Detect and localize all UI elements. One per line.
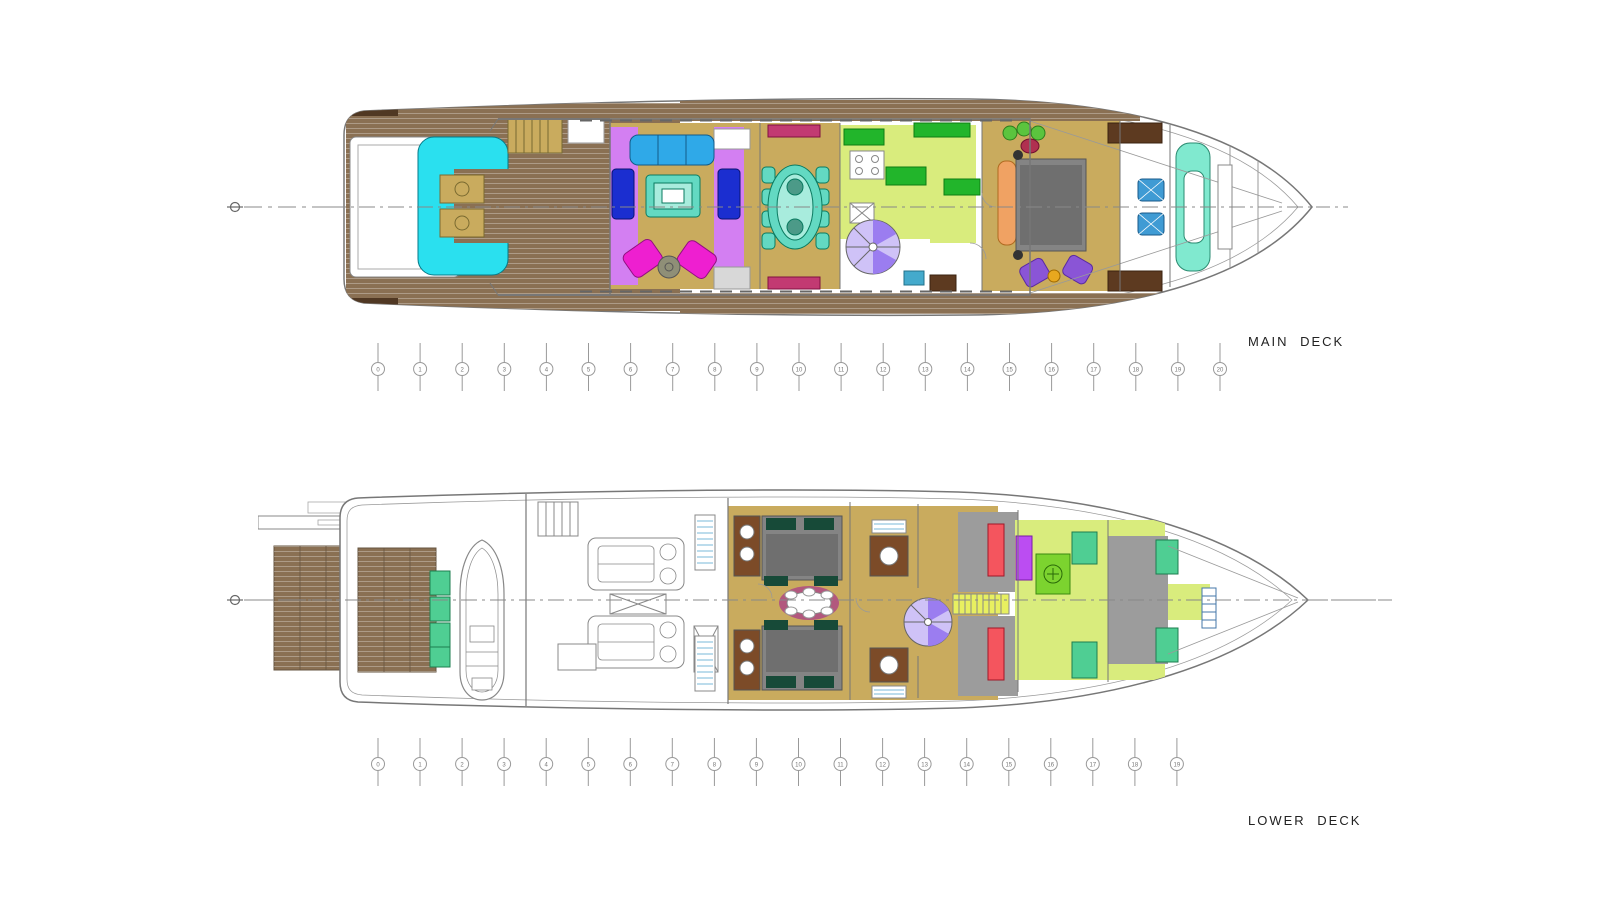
main-owner-cabin xyxy=(982,121,1120,291)
station-marker: 8 xyxy=(708,343,721,391)
svg-text:10: 10 xyxy=(795,762,802,768)
svg-text:11: 11 xyxy=(838,367,845,373)
svg-text:13: 13 xyxy=(922,367,929,373)
svg-text:14: 14 xyxy=(963,762,970,768)
lower-deck-label: LOWER DECK xyxy=(1248,813,1361,828)
station-marker: 17 xyxy=(1086,738,1099,786)
station-marker: 4 xyxy=(540,343,553,391)
station-marker: 18 xyxy=(1129,343,1142,391)
centerline-symbol-main xyxy=(227,203,243,212)
station-marker: 0 xyxy=(372,343,385,391)
main-deck-plan xyxy=(330,83,1320,333)
lower-tender xyxy=(460,540,504,700)
station-marker: 2 xyxy=(456,738,469,786)
svg-text:19: 19 xyxy=(1174,762,1181,768)
svg-text:10: 10 xyxy=(796,367,803,373)
svg-text:18: 18 xyxy=(1132,367,1139,373)
station-marker: 8 xyxy=(708,738,721,786)
station-marker: 5 xyxy=(582,343,595,391)
main-spiral-stair xyxy=(846,220,900,274)
lower-garage xyxy=(358,548,450,672)
station-marker: 7 xyxy=(666,738,679,786)
station-marker: 14 xyxy=(960,738,973,786)
centerline-symbol-lower xyxy=(227,596,243,605)
station-marker: 11 xyxy=(834,738,847,786)
station-marker: 5 xyxy=(582,738,595,786)
station-marker: 16 xyxy=(1045,343,1058,391)
main-deck-label: MAIN DECK xyxy=(1248,334,1344,349)
station-marker: 2 xyxy=(456,343,469,391)
station-marker: 12 xyxy=(876,738,889,786)
station-marker: 6 xyxy=(624,738,637,786)
station-marker: 3 xyxy=(498,343,511,391)
station-marker: 9 xyxy=(750,343,763,391)
station-marker: 15 xyxy=(1002,738,1015,786)
station-marker: 20 xyxy=(1214,343,1227,391)
station-marker: 12 xyxy=(877,343,890,391)
station-marker: 14 xyxy=(961,343,974,391)
station-marker: 13 xyxy=(918,738,931,786)
svg-text:13: 13 xyxy=(921,762,928,768)
svg-text:14: 14 xyxy=(964,367,971,373)
station-marker: 9 xyxy=(750,738,763,786)
station-marker: 19 xyxy=(1171,343,1184,391)
station-marker: 10 xyxy=(792,738,805,786)
station-marker: 7 xyxy=(666,343,679,391)
station-marker: 11 xyxy=(835,343,848,391)
station-marker: 6 xyxy=(624,343,637,391)
station-marker: 0 xyxy=(372,738,385,786)
lower-deck-plan xyxy=(258,476,1378,728)
svg-text:20: 20 xyxy=(1217,367,1224,373)
station-marker: 3 xyxy=(498,738,511,786)
station-marker: 13 xyxy=(919,343,932,391)
svg-text:17: 17 xyxy=(1089,762,1096,768)
station-marker: 17 xyxy=(1087,343,1100,391)
svg-text:18: 18 xyxy=(1132,762,1139,768)
svg-text:19: 19 xyxy=(1175,367,1182,373)
station-marker: 1 xyxy=(414,343,427,391)
main-deck-ruler: 01234567891011121314151617181920 xyxy=(330,339,1270,395)
drawing-canvas: 01234567891011121314151617181920 0123456… xyxy=(0,0,1600,900)
station-marker: 19 xyxy=(1170,738,1183,786)
station-marker: 16 xyxy=(1044,738,1057,786)
station-marker: 15 xyxy=(1003,343,1016,391)
svg-text:16: 16 xyxy=(1047,762,1054,768)
svg-text:11: 11 xyxy=(837,762,844,768)
lower-deck-ruler: 012345678910111213141516171819 xyxy=(330,734,1230,790)
station-marker: 18 xyxy=(1128,738,1141,786)
station-marker: 1 xyxy=(414,738,427,786)
svg-text:17: 17 xyxy=(1090,367,1097,373)
station-marker: 10 xyxy=(793,343,806,391)
svg-text:15: 15 xyxy=(1006,367,1013,373)
svg-text:12: 12 xyxy=(880,367,887,373)
svg-text:15: 15 xyxy=(1005,762,1012,768)
svg-text:12: 12 xyxy=(879,762,886,768)
svg-text:16: 16 xyxy=(1048,367,1055,373)
station-marker: 4 xyxy=(540,738,553,786)
